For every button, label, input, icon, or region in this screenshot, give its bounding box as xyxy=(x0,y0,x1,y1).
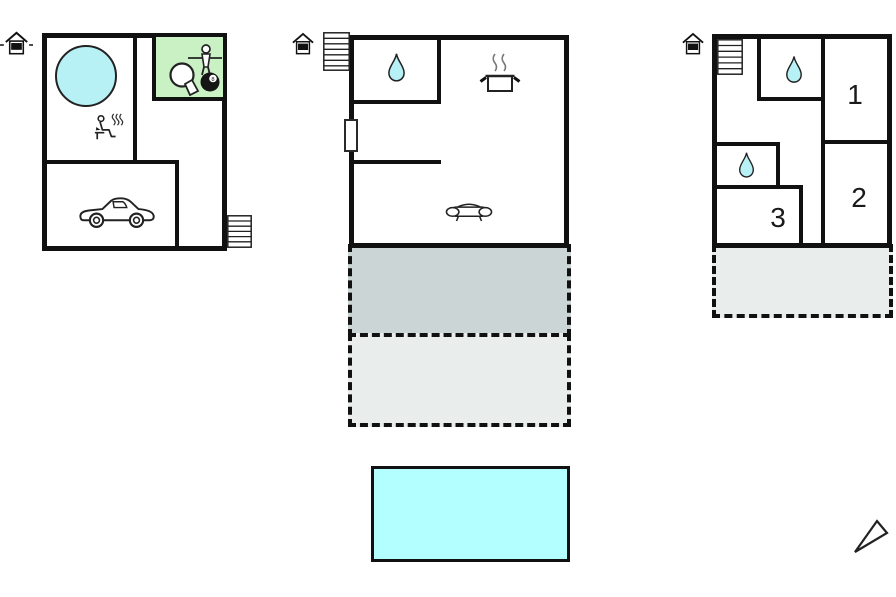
wall xyxy=(349,100,441,104)
sauna-icon xyxy=(93,111,125,145)
wall xyxy=(757,97,825,101)
billiard-8ball-icon: 8 xyxy=(201,73,220,92)
entrance-icon xyxy=(682,32,704,57)
stairs-icon xyxy=(323,32,350,71)
terrace-lower xyxy=(348,333,571,427)
swimming-pool xyxy=(371,466,570,562)
terrace-upper xyxy=(348,244,571,337)
room-1-label: 1 xyxy=(840,80,870,110)
entrance-icon xyxy=(292,32,314,57)
svg-text:8: 8 xyxy=(211,77,214,83)
room-2-label: 2 xyxy=(844,183,874,213)
stairs-icon xyxy=(227,215,252,248)
sofa-icon xyxy=(445,195,493,224)
floorplan-canvas: 8 xyxy=(0,0,896,597)
wall xyxy=(757,34,761,100)
terrace-right xyxy=(712,244,893,318)
games-room-icons: 8 xyxy=(156,37,222,97)
car-icon xyxy=(78,190,156,231)
cooking-pot-icon xyxy=(479,52,521,96)
wall xyxy=(349,160,441,164)
water-drop-icon xyxy=(785,55,803,84)
wall xyxy=(175,160,179,251)
entrance-icon xyxy=(0,31,33,57)
compass-icon xyxy=(848,517,890,561)
room-3-label: 3 xyxy=(763,203,793,233)
stairs-icon xyxy=(717,39,743,75)
wall xyxy=(42,160,179,164)
water-drop-icon xyxy=(738,151,755,179)
water-drop-icon xyxy=(387,52,406,83)
wall xyxy=(717,185,803,189)
wall xyxy=(821,140,887,144)
hot-tub-icon xyxy=(55,45,117,107)
wall xyxy=(437,35,441,103)
wall xyxy=(776,142,780,188)
wall xyxy=(717,142,780,146)
wall xyxy=(133,33,137,163)
window-icon xyxy=(344,119,358,152)
wall xyxy=(799,185,803,243)
table-tennis-icon xyxy=(171,64,199,96)
